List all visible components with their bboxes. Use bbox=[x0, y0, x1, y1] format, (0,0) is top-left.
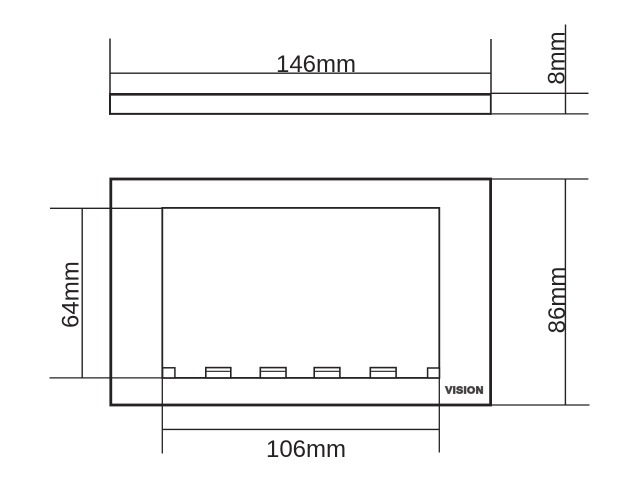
svg-text:106mm: 106mm bbox=[266, 436, 346, 463]
svg-text:VISION: VISION bbox=[445, 384, 484, 396]
svg-text:8mm: 8mm bbox=[544, 31, 571, 84]
svg-text:86mm: 86mm bbox=[544, 267, 571, 334]
svg-text:146mm: 146mm bbox=[276, 51, 356, 78]
svg-text:64mm: 64mm bbox=[58, 261, 85, 328]
